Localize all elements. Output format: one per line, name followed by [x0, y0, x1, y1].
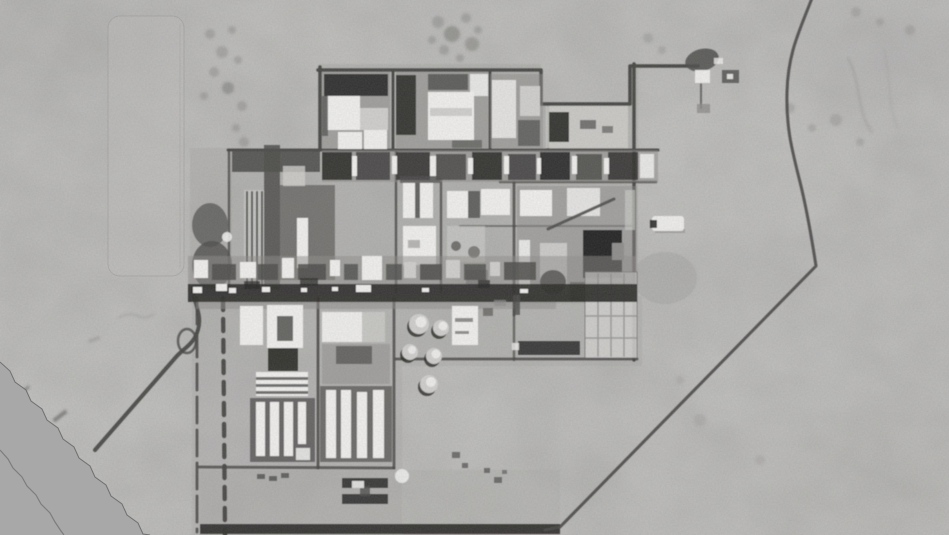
satellite-photo	[0, 0, 949, 535]
satellite-photo-canvas	[0, 0, 949, 535]
film-grain	[0, 0, 949, 535]
